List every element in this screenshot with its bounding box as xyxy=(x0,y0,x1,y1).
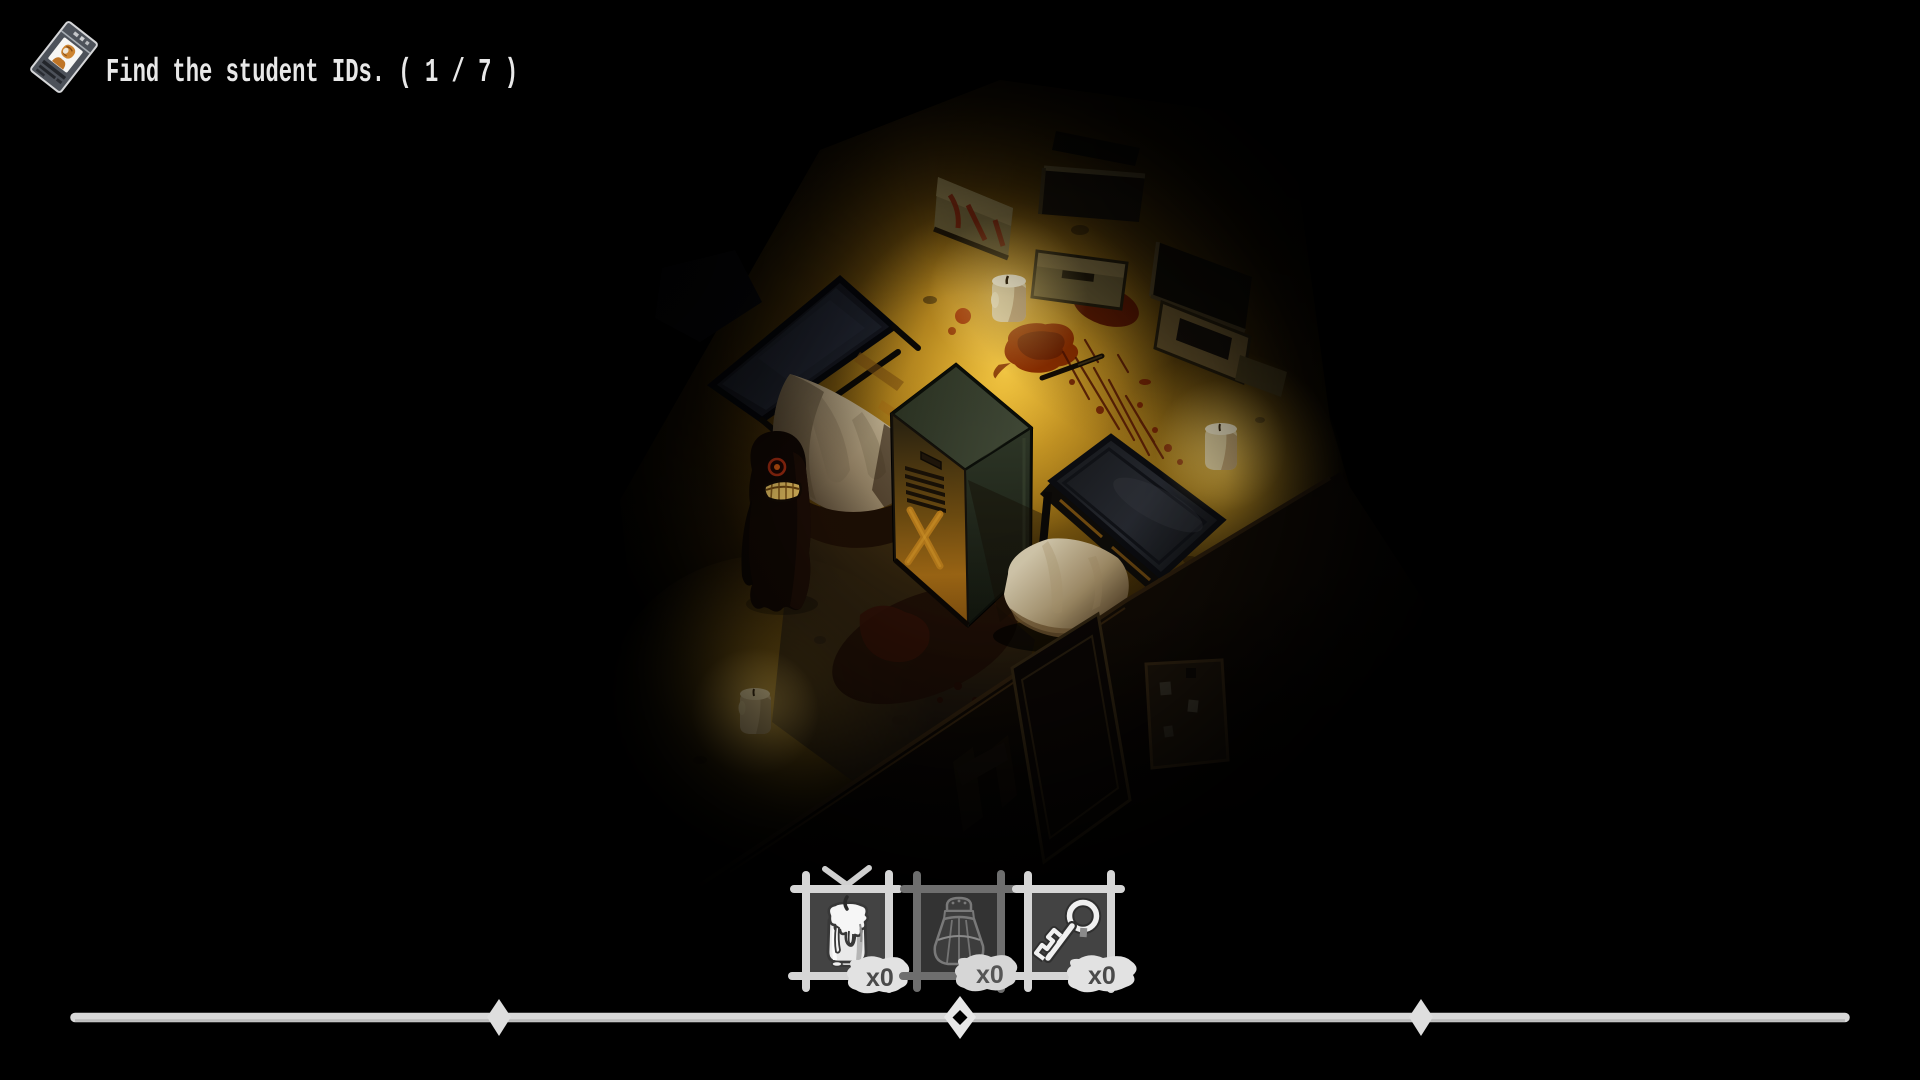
svg-text:x0: x0 xyxy=(866,964,894,992)
svg-text:Find the student IDs. ( 1 / 7: Find the student IDs. ( 1 / 7 ) xyxy=(106,54,518,91)
svg-text:x0: x0 xyxy=(1088,962,1116,990)
svg-text:x0: x0 xyxy=(976,961,1004,989)
